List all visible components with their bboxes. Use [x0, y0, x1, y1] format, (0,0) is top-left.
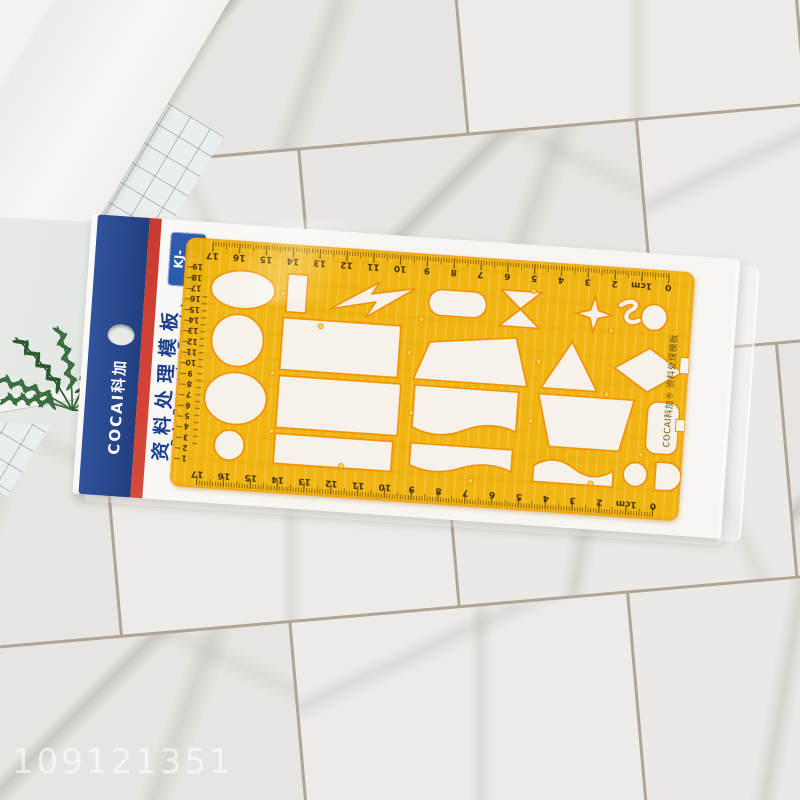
svg-text:12: 12 [340, 259, 353, 270]
svg-text:11: 11 [186, 347, 197, 357]
svg-text:1cm: 1cm [615, 498, 637, 509]
svg-text:6: 6 [504, 271, 511, 281]
svg-text:9: 9 [408, 483, 415, 493]
svg-text:14: 14 [286, 255, 299, 266]
brand-logo-text: COCAI科加 [102, 346, 131, 467]
svg-text:2: 2 [611, 278, 618, 288]
svg-text:15: 15 [244, 472, 257, 483]
svg-text:4: 4 [542, 493, 549, 503]
svg-text:13: 13 [188, 326, 199, 336]
watermark: 109121351 [12, 742, 234, 782]
svg-text:17: 17 [206, 250, 219, 261]
svg-text:9: 9 [424, 265, 431, 275]
svg-text:5: 5 [515, 491, 522, 501]
svg-text:16: 16 [190, 294, 201, 304]
svg-text:10: 10 [185, 358, 196, 368]
hang-hole [107, 323, 135, 346]
drawing-template: 01cm234567891011121314151617 01cm2345678… [169, 237, 695, 522]
svg-text:1cm: 1cm [631, 279, 653, 290]
svg-text:2: 2 [182, 443, 188, 452]
svg-text:3: 3 [183, 432, 189, 441]
cutout-vertical-rectangle [286, 274, 309, 313]
cutout-connector-circle [622, 462, 648, 488]
svg-text:14: 14 [271, 474, 284, 485]
cutout-large-rectangle [276, 375, 401, 435]
svg-text:11: 11 [351, 479, 364, 490]
svg-text:12: 12 [325, 478, 338, 489]
svg-text:11: 11 [367, 261, 380, 272]
svg-text:13: 13 [298, 476, 311, 487]
svg-text:5: 5 [184, 411, 190, 420]
svg-text:15: 15 [189, 304, 200, 314]
svg-text:18: 18 [191, 272, 202, 282]
svg-text:16: 16 [217, 470, 230, 481]
cutout-rectangle [280, 318, 401, 378]
svg-text:14: 14 [188, 315, 199, 325]
svg-text:10: 10 [394, 263, 407, 274]
svg-text:15: 15 [259, 253, 272, 264]
svg-text:8: 8 [435, 485, 442, 495]
cutout-small-circle [640, 304, 668, 332]
svg-text:7: 7 [477, 269, 484, 279]
marble-tile [629, 564, 800, 800]
svg-text:3: 3 [569, 495, 576, 505]
stencil-template-package: COCAI科加 资料处理模板 Data Processing Template … [72, 214, 763, 550]
svg-text:1: 1 [181, 454, 187, 463]
svg-text:4: 4 [558, 274, 565, 284]
svg-text:16: 16 [233, 252, 246, 263]
svg-text:7: 7 [462, 487, 469, 497]
svg-text:10: 10 [378, 481, 391, 492]
svg-text:6: 6 [185, 400, 191, 409]
svg-text:9: 9 [187, 368, 193, 377]
svg-text:12: 12 [187, 336, 198, 346]
svg-text:2: 2 [596, 496, 603, 506]
svg-text:0: 0 [650, 500, 657, 510]
svg-text:7: 7 [186, 390, 192, 399]
svg-text:0: 0 [665, 282, 672, 292]
svg-text:13: 13 [313, 257, 326, 268]
cutout-quadrilateral [535, 394, 634, 453]
svg-text:8: 8 [186, 379, 192, 388]
scene: COCAI科加 资料处理模板 Data Processing Template … [0, 0, 800, 800]
svg-text:6: 6 [489, 489, 496, 499]
svg-text:17: 17 [191, 468, 204, 479]
svg-text:4: 4 [184, 422, 190, 431]
svg-text:19: 19 [192, 262, 203, 272]
svg-text:5: 5 [531, 272, 538, 282]
svg-text:3: 3 [584, 276, 591, 286]
marble-tile [291, 594, 646, 800]
svg-text:17: 17 [191, 283, 202, 293]
cutout-terminator-stadium [428, 289, 488, 319]
svg-text:8: 8 [450, 267, 457, 277]
